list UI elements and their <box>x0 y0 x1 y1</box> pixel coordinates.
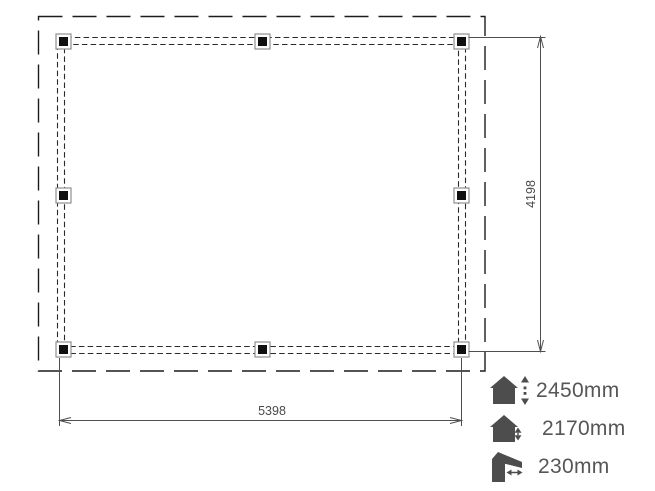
legend-row-total-height: 2450mm <box>490 372 655 410</box>
beam-outer-outline <box>58 38 466 354</box>
posts <box>56 34 469 357</box>
legend-label-roof-overhang: 230mm <box>538 455 610 479</box>
roof-overhang-icon <box>490 450 536 484</box>
post-top-left <box>56 34 71 49</box>
legend-row-wall-height: 2170mm <box>490 410 655 448</box>
legend-row-roof-overhang: 230mm <box>490 448 655 486</box>
post-bottom-right <box>454 342 469 357</box>
height-dimension-label: 4198 <box>524 180 538 208</box>
house-wall-height-icon <box>490 414 536 444</box>
post-right-middle <box>454 188 469 203</box>
width-dimension-label: 5398 <box>258 404 286 418</box>
post-left-middle <box>56 188 71 203</box>
floor-plan-page: 5398 4198 2450mm <box>0 0 655 491</box>
height-dimension: 4198 <box>469 36 546 352</box>
legend-label-wall-height: 2170mm <box>542 417 626 441</box>
house-total-height-icon <box>490 376 536 406</box>
legend-label-total-height: 2450mm <box>536 379 620 403</box>
post-bottom-middle <box>255 342 270 357</box>
beam-inner-outline <box>65 45 459 347</box>
dimensions-legend: 2450mm 2170mm <box>490 372 655 486</box>
post-top-middle <box>255 34 270 49</box>
width-dimension: 5398 <box>60 358 462 426</box>
post-top-right <box>454 34 469 49</box>
roof-outline <box>39 17 486 372</box>
post-bottom-left <box>56 342 71 357</box>
